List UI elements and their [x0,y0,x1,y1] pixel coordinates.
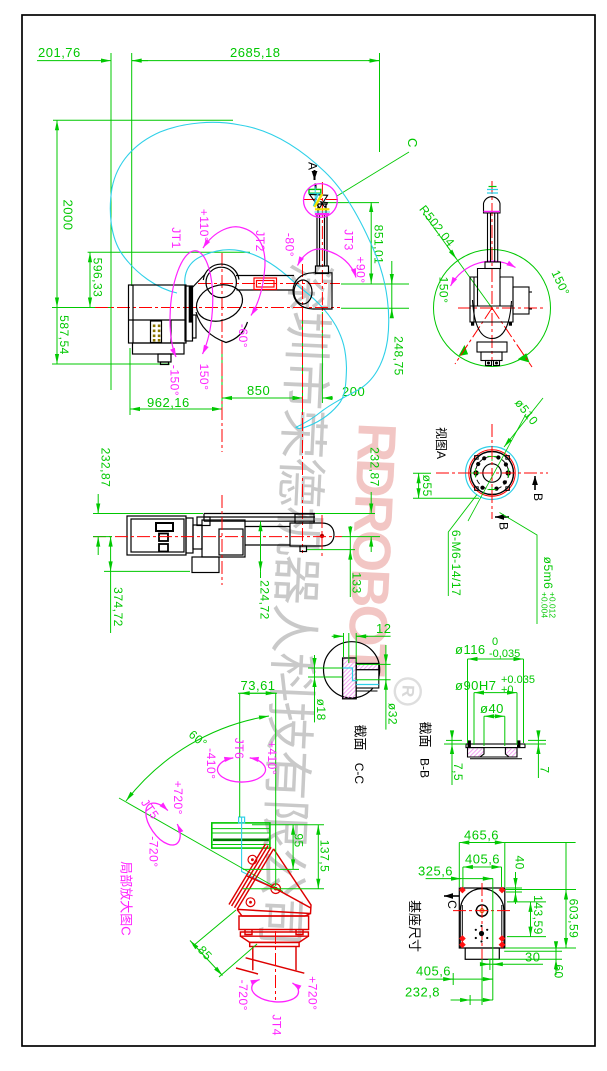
svg-text:201,76: 201,76 [38,45,81,60]
svg-text:7: 7 [538,766,552,773]
svg-text:ø116: ø116 [455,642,486,657]
svg-text:143,59: 143,59 [531,895,545,935]
svg-text:2000: 2000 [61,200,76,231]
svg-text:133: 133 [350,572,364,594]
svg-text:-720°: -720° [147,836,161,867]
svg-text:-60°: -60° [236,324,250,348]
svg-text:-410°: -410° [204,748,218,779]
svg-text:73,61: 73,61 [241,678,276,693]
svg-text:局部放大图C: 局部放大图C [119,861,134,935]
svg-text:596,33: 596,33 [91,258,105,298]
svg-text:6-M6-14/17: 6-M6-14/17 [449,530,463,596]
svg-text:232,8: 232,8 [405,985,440,1000]
svg-text:B-B: B-B [418,758,432,778]
svg-text:7,5: 7,5 [451,763,465,781]
svg-text:-720°: -720° [236,980,250,1011]
svg-text:-0,035: -0,035 [489,648,520,660]
svg-text:465,6: 465,6 [464,828,499,843]
svg-text:40: 40 [513,856,527,870]
svg-text:A: A [306,162,320,170]
svg-text:JT2: JT2 [253,230,267,252]
svg-text:224,72: 224,72 [258,580,272,620]
svg-text:603,59: 603,59 [567,899,581,939]
svg-text:+110°: +110° [197,209,211,242]
svg-text:405,6: 405,6 [416,964,451,979]
svg-text:+0.004: +0.004 [540,592,550,619]
svg-text:+0: +0 [501,684,514,696]
svg-text:150°: 150° [197,364,211,391]
svg-text:248,75: 248,75 [392,336,406,376]
svg-text:ø18: ø18 [314,699,328,721]
svg-text:JT6: JT6 [232,738,246,760]
svg-text:截面: 截面 [418,721,433,747]
svg-text:0: 0 [492,636,498,648]
svg-text:R: R [398,685,418,698]
svg-text:视图A: 视图A [434,427,449,459]
svg-text:-150°: -150° [168,365,182,396]
svg-text:232,87: 232,87 [368,447,382,487]
svg-text:B: B [497,522,511,530]
svg-text:B: B [531,493,545,501]
svg-text:-80°: -80° [283,233,297,257]
svg-text:325,6: 325,6 [418,864,453,879]
svg-text:405,6: 405,6 [465,852,500,867]
svg-text:ø55: ø55 [420,475,434,497]
svg-text:截面: 截面 [353,724,368,750]
svg-text:232,87: 232,87 [99,448,113,488]
svg-text:JT4: JT4 [270,1014,284,1036]
svg-text:60: 60 [552,964,566,978]
svg-text:+90°: +90° [354,256,368,283]
svg-text:587,54: 587,54 [57,315,71,355]
svg-text:+720°: +720° [171,781,185,815]
svg-text:ø32: ø32 [386,703,400,725]
svg-text:962,16: 962,16 [147,395,190,410]
svg-text:137,5: 137,5 [318,840,332,873]
svg-text:ø40: ø40 [480,701,504,716]
svg-text:12: 12 [376,621,391,636]
svg-text:C-C: C-C [352,763,366,785]
svg-text:95: 95 [292,833,306,847]
svg-text:JT3: JT3 [342,229,356,251]
svg-text:C: C [445,900,459,909]
svg-text:+410°: +410° [265,741,279,775]
svg-text:ø5m6: ø5m6 [541,557,555,590]
svg-text:2685,18: 2685,18 [230,45,281,60]
svg-text:JT1: JT1 [169,227,183,249]
svg-text:851,01: 851,01 [372,225,386,265]
svg-text:850: 850 [247,383,270,398]
svg-text:C: C [405,138,420,148]
svg-text:ø90H7: ø90H7 [455,678,497,693]
svg-text:+720°: +720° [305,976,319,1010]
svg-text:374,72: 374,72 [111,587,125,627]
svg-text:基座尺寸: 基座尺寸 [407,900,422,952]
svg-text:30: 30 [525,950,540,965]
svg-text:150°: 150° [437,277,451,304]
